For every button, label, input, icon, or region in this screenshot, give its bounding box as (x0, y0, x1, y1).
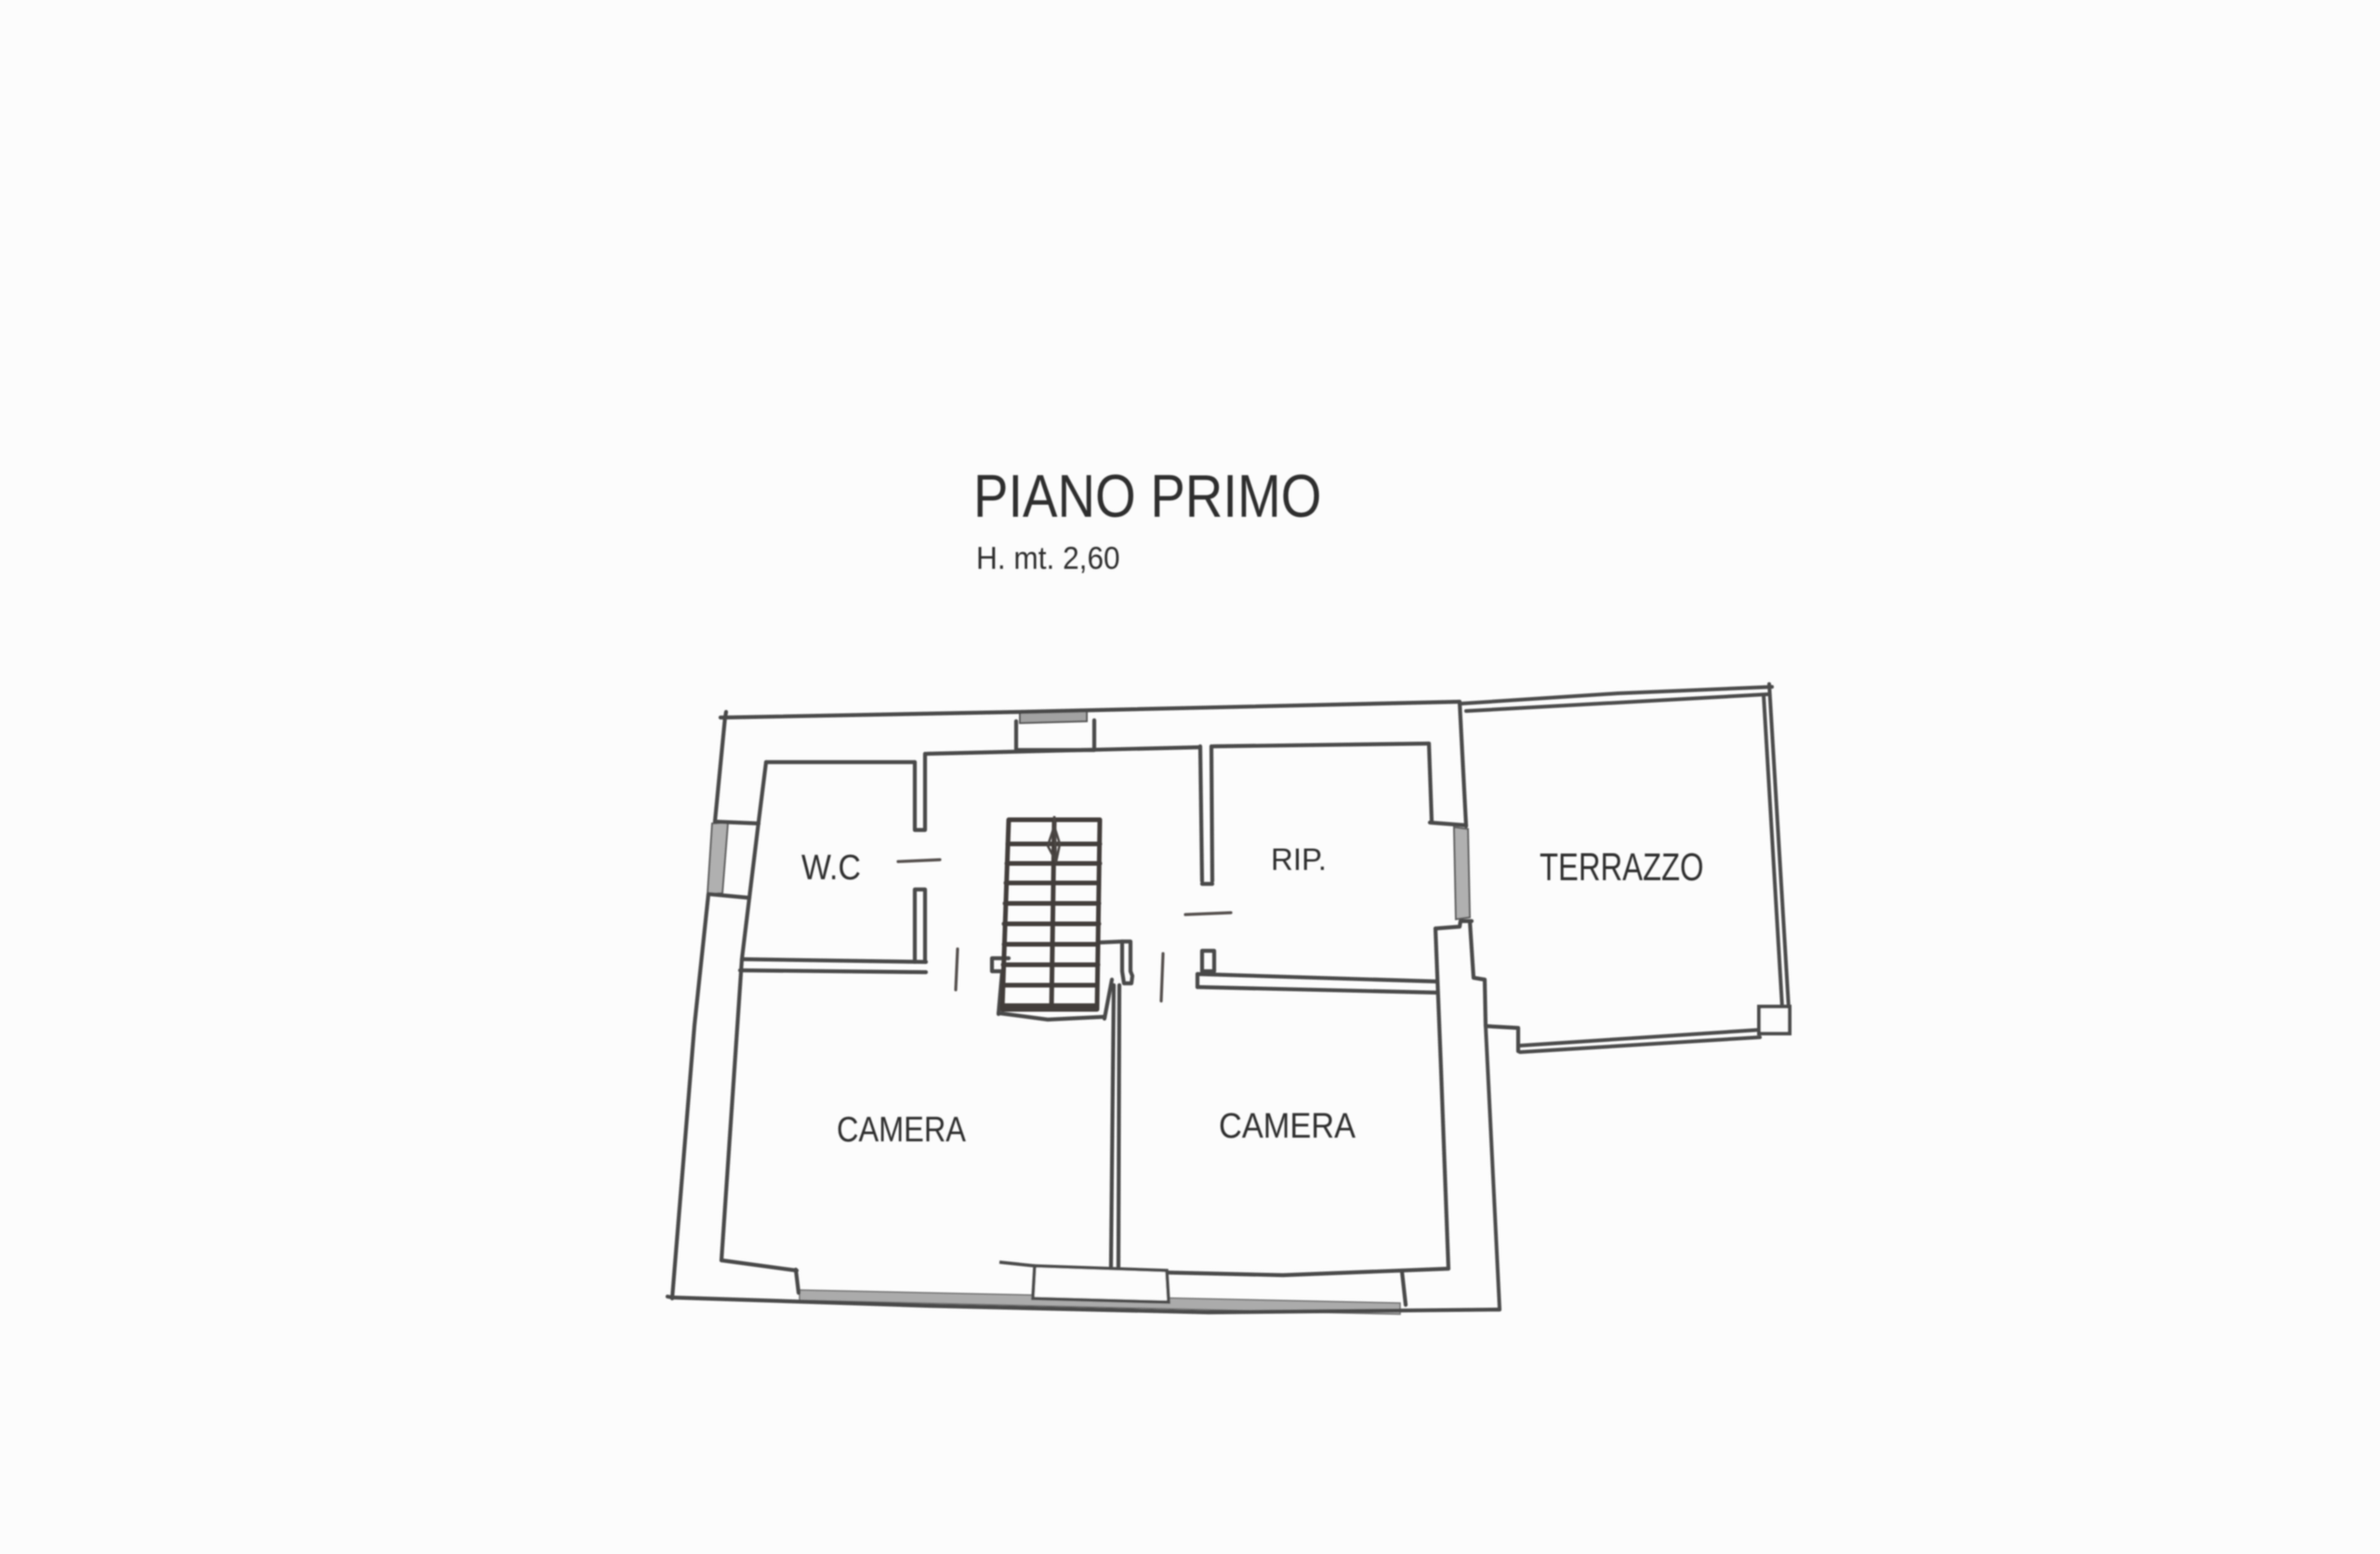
svg-text:W.C: W.C (801, 847, 861, 887)
svg-text:PIANO PRIMO: PIANO PRIMO (973, 462, 1321, 530)
svg-text:H. mt. 2,60: H. mt. 2,60 (976, 540, 1120, 575)
svg-text:CAMERA: CAMERA (837, 1111, 966, 1150)
svg-text:CAMERA: CAMERA (1219, 1105, 1356, 1145)
svg-text:RIP.: RIP. (1271, 842, 1327, 876)
svg-text:TERRAZZO: TERRAZZO (1540, 845, 1703, 889)
